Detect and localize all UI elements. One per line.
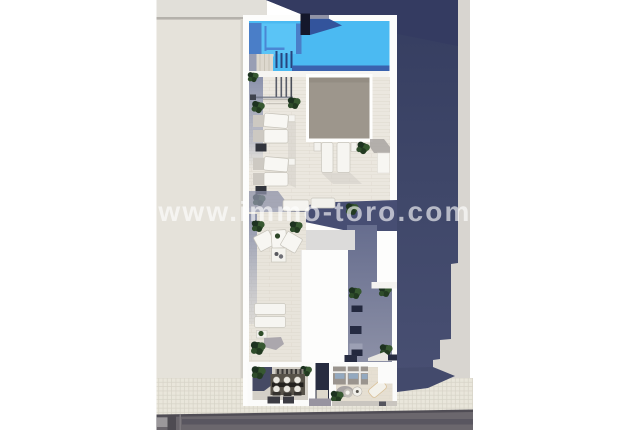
svg-text:www.immo-toro.com: www.immo-toro.com xyxy=(157,196,471,227)
